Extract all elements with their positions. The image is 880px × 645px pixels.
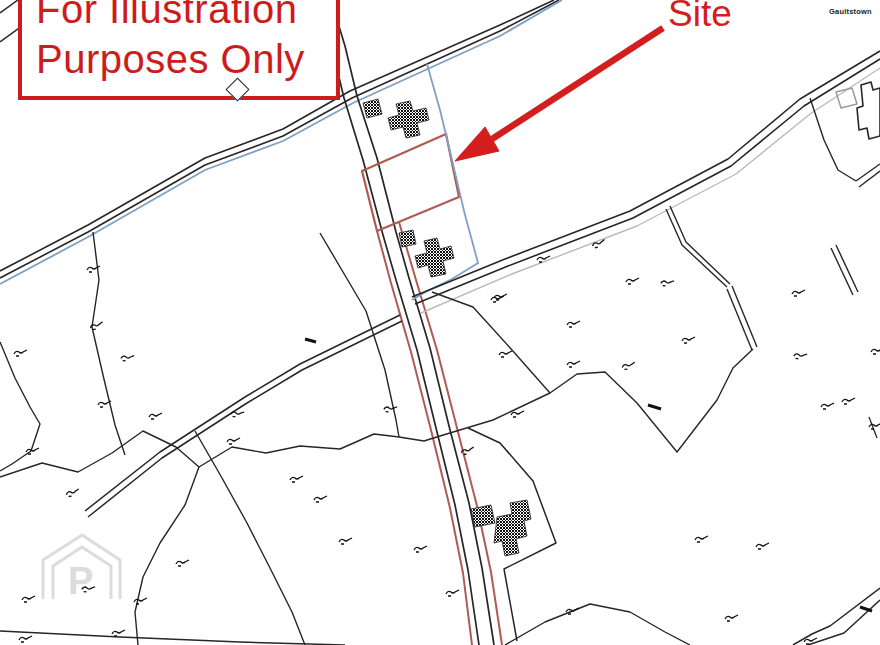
rough-grass-icon <box>66 489 80 497</box>
rough-grass-icon <box>176 560 189 566</box>
rough-grass-icon <box>821 403 834 409</box>
rough-grass-icon <box>491 296 504 302</box>
rough-grass-icon <box>494 294 507 300</box>
site-plot-boundary <box>362 134 459 231</box>
building-farm3-house <box>494 500 531 556</box>
building-gaultstown-outline <box>836 88 857 108</box>
bottom-boundary <box>0 631 345 645</box>
scrub-boundary-c <box>135 467 199 645</box>
building-farm2-house <box>415 238 454 277</box>
field-boundary-west <box>92 232 125 455</box>
rough-grass-icon <box>231 410 245 418</box>
tree-strip-right-a <box>831 248 853 295</box>
rough-grass-icon <box>227 438 240 444</box>
hedge-line-b <box>670 206 730 284</box>
building-farm3-shed <box>471 505 495 527</box>
corner-road-edge-b <box>808 600 880 645</box>
rough-grass-icon <box>682 337 695 343</box>
scrub-boundary-a <box>0 393 550 477</box>
rough-grass-icon <box>19 636 32 642</box>
site-location-map: P For Illustration Purposes Only Site Ga… <box>0 0 880 645</box>
scrub-boundary-d <box>432 292 753 452</box>
rough-grass-icon <box>695 536 708 542</box>
building-farm2-shed <box>399 230 416 247</box>
roadb-north-edge <box>412 51 880 297</box>
rough-grass-icon <box>537 256 550 262</box>
rough-grass-icon <box>794 352 808 360</box>
rough-grass-icon <box>384 405 398 412</box>
wall-topright-a <box>856 164 880 181</box>
rough-grass-icon <box>567 321 580 327</box>
scrub-boundary-e <box>505 604 690 645</box>
rough-grass-icon <box>446 590 459 596</box>
building-gaultstown <box>857 82 880 139</box>
field-boundary-left-edge <box>0 342 40 471</box>
corner-road-edge-a <box>793 588 880 645</box>
rough-grass-icon <box>149 413 162 419</box>
site-arrow-head <box>455 127 499 161</box>
rough-grass-icon <box>871 348 880 354</box>
townland-label: Gaultstown <box>829 7 872 16</box>
rough-grass-icon <box>567 361 580 367</box>
wall-dash-icon <box>860 607 872 611</box>
rough-grass-icon <box>339 538 352 544</box>
tree-strip-center-a <box>727 289 752 350</box>
building-farm1-shed <box>363 99 382 118</box>
rough-grass-symbols <box>14 240 880 644</box>
wall-topright-b <box>859 171 880 187</box>
wall-dash-icon <box>305 339 316 342</box>
building-farm1-house <box>388 101 429 138</box>
rough-grass-icon <box>792 290 805 296</box>
watermark-letter: P <box>68 560 93 602</box>
rough-grass-icon <box>134 598 147 604</box>
rough-grass-icon <box>842 398 855 404</box>
rough-grass-icon <box>98 401 111 407</box>
rough-grass-icon <box>869 423 880 429</box>
rough-grass-icon <box>314 496 327 502</box>
roadb-gray-line <box>421 68 880 313</box>
disclaimer-line2: Purposes Only <box>36 34 336 84</box>
site-label: Site <box>668 0 732 35</box>
rough-grass-icon <box>725 615 738 621</box>
rough-grass-icon <box>756 543 769 549</box>
hedge-line-a <box>666 209 727 287</box>
wall-dashes <box>305 339 872 611</box>
rough-grass-icon <box>14 350 27 356</box>
rough-grass-icon <box>290 476 303 482</box>
disclaimer-line1: For Illustration <box>36 0 336 34</box>
trackc-south-edge <box>88 321 402 517</box>
rough-grass-icon <box>499 351 512 357</box>
boundary-right-short <box>869 417 877 438</box>
rough-grass-icon <box>511 411 524 417</box>
tree-strip-right-b <box>836 245 858 292</box>
site-arrow-shaft <box>492 28 663 139</box>
tree-strip-center-b <box>732 286 757 347</box>
boundary-topleft-a <box>0 0 18 13</box>
rough-grass-icon <box>622 362 636 369</box>
rough-grass-icon <box>626 278 639 284</box>
disclaimer-box: For Illustration Purposes Only <box>18 0 340 100</box>
rough-grass-icon <box>112 630 125 636</box>
scrub-boundary-b <box>195 431 305 645</box>
wall-dash-icon <box>648 405 661 409</box>
rough-grass-icon <box>661 279 675 286</box>
boundary-topright <box>810 98 856 181</box>
rough-grass-icon <box>121 354 134 361</box>
rough-grass-icon <box>22 596 35 602</box>
rough-grass-icon <box>414 546 427 552</box>
